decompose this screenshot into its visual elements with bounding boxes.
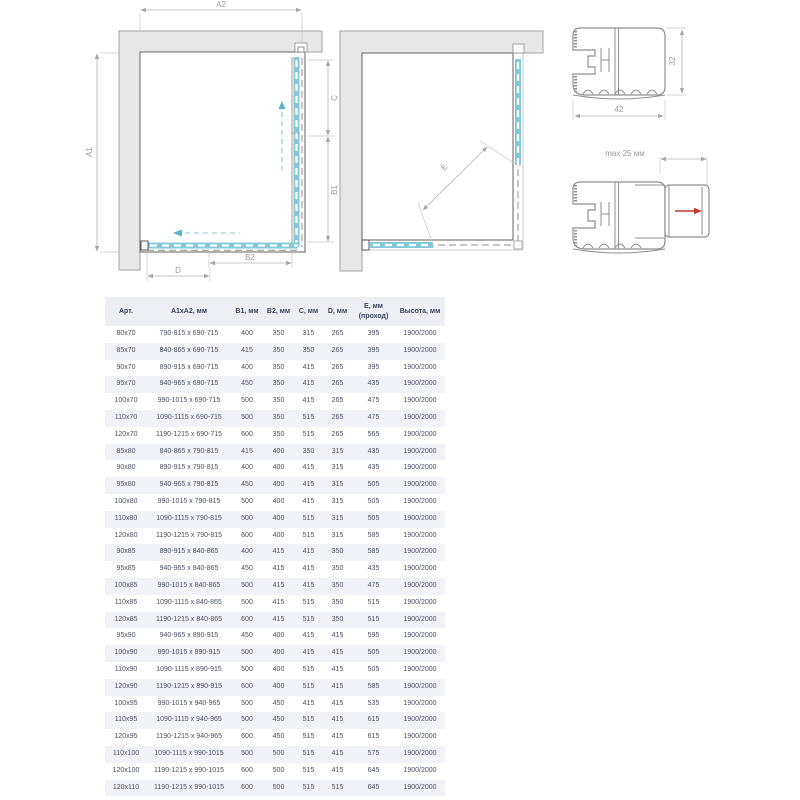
table-cell: 350 <box>323 544 352 561</box>
table-cell: 415 <box>323 628 352 645</box>
table-row: 120x1001190-1215 x 990-10156005005154156… <box>105 763 445 780</box>
table-cell: 1190-1215 x 690-715 <box>147 427 231 444</box>
table-cell: 100x80 <box>105 494 147 511</box>
table-cell: 400 <box>263 511 294 528</box>
table-cell: 100x70 <box>105 393 147 410</box>
table-cell: 315 <box>294 326 323 343</box>
table-row: 100x85990-1015 x 840-8655004154153504751… <box>105 578 445 595</box>
table-cell: 1090-1115 x 840-865 <box>147 595 231 612</box>
table-cell: 265 <box>323 360 352 377</box>
table-cell: 645 <box>352 763 395 780</box>
table-cell: 415 <box>263 578 294 595</box>
table-cell: 1900/2000 <box>395 528 445 545</box>
table-cell: 95x70 <box>105 376 147 393</box>
table-cell: 350 <box>323 595 352 612</box>
table-cell: 515 <box>294 746 323 763</box>
table-cell: 1900/2000 <box>395 393 445 410</box>
table-cell: 400 <box>231 360 263 377</box>
dim-label-max25: max 25 мм <box>605 149 644 158</box>
table-row: 120x1101190-1215 x 990-10156005005155156… <box>105 780 445 797</box>
dim-label-42: 42 <box>615 105 624 114</box>
table-cell: 500 <box>231 746 263 763</box>
table-cell: 1900/2000 <box>395 662 445 679</box>
table-cell: 600 <box>231 679 263 696</box>
table-cell: 505 <box>352 645 395 662</box>
table-cell: 450 <box>231 561 263 578</box>
column-header: A1xA2, мм <box>147 297 231 326</box>
table-cell: 350 <box>263 343 294 360</box>
table-cell: 1900/2000 <box>395 477 445 494</box>
table-cell: 95x85 <box>105 561 147 578</box>
table-cell: 110x85 <box>105 595 147 612</box>
table-row: 100x70990-1015 x 690-7155003504152654751… <box>105 393 445 410</box>
table-cell: 265 <box>323 393 352 410</box>
table-cell: 400 <box>231 326 263 343</box>
table-cell: 515 <box>294 763 323 780</box>
table-cell: 1900/2000 <box>395 729 445 746</box>
table-cell: 400 <box>231 544 263 561</box>
column-header: B2, мм <box>263 297 294 326</box>
table-cell: 450 <box>263 696 294 713</box>
table-cell: 120x100 <box>105 763 147 780</box>
column-header: Высота, мм <box>395 297 445 326</box>
table-cell: 110x80 <box>105 511 147 528</box>
dim-label-b2: B2 <box>245 253 255 262</box>
table-cell: 515 <box>294 679 323 696</box>
table-cell: 120x110 <box>105 780 147 797</box>
dim-label-a1: A1 <box>85 147 94 157</box>
table-cell: 585 <box>352 544 395 561</box>
enclosure-outline <box>140 52 305 252</box>
table-cell: 515 <box>294 612 323 629</box>
table-cell: 415 <box>263 561 294 578</box>
table-cell: 395 <box>352 326 395 343</box>
table-cell: 450 <box>231 628 263 645</box>
table-cell: 500 <box>231 410 263 427</box>
table-cell: 265 <box>323 326 352 343</box>
table-cell: 315 <box>323 477 352 494</box>
table-cell: 600 <box>231 780 263 797</box>
table-cell: 505 <box>352 477 395 494</box>
table-row: 85x70840-865 x 690-715415350350265395190… <box>105 343 445 360</box>
table-cell: 515 <box>294 712 323 729</box>
table-cell: 395 <box>352 360 395 377</box>
table-cell: 415 <box>294 460 323 477</box>
table-cell: 990-1015 x 940-965 <box>147 696 231 713</box>
table-cell: 515 <box>294 511 323 528</box>
table-cell: 890-915 x 690-715 <box>147 360 231 377</box>
table-cell: 1900/2000 <box>395 561 445 578</box>
table-cell: 1900/2000 <box>395 544 445 561</box>
table-cell: 1900/2000 <box>395 494 445 511</box>
table-cell: 415 <box>323 645 352 662</box>
table-cell: 400 <box>263 477 294 494</box>
table-cell: 415 <box>294 376 323 393</box>
table-row: 120x801190-1215 x 790-815600400515315585… <box>105 528 445 545</box>
table-cell: 500 <box>231 494 263 511</box>
table-cell: 435 <box>352 561 395 578</box>
table-cell: 1900/2000 <box>395 780 445 797</box>
table-cell: 415 <box>323 712 352 729</box>
table-cell: 890-915 x 790-815 <box>147 460 231 477</box>
table-cell: 415 <box>294 628 323 645</box>
dimension-a1: A1 <box>85 53 118 252</box>
table-cell: 350 <box>294 343 323 360</box>
table-cell: 535 <box>352 696 395 713</box>
table-cell: 990-1015 x 690-715 <box>147 393 231 410</box>
dimension-height-32: 32 <box>667 28 686 95</box>
table-cell: 1900/2000 <box>395 444 445 461</box>
table-cell: 1900/2000 <box>395 696 445 713</box>
door-handle <box>141 241 148 250</box>
table-cell: 110x100 <box>105 746 147 763</box>
table-cell: 1900/2000 <box>395 360 445 377</box>
table-cell: 80x70 <box>105 326 147 343</box>
table-cell: 515 <box>352 595 395 612</box>
table-cell: 350 <box>263 393 294 410</box>
table-cell: 500 <box>231 595 263 612</box>
table-cell: 90x80 <box>105 460 147 477</box>
table-cell: 415 <box>294 561 323 578</box>
table-row: 100x95990-1015 x 940-9655004504154155351… <box>105 696 445 713</box>
table-cell: 400 <box>263 662 294 679</box>
column-header: C, мм <box>294 297 323 326</box>
table-cell: 515 <box>294 729 323 746</box>
table-cell: 110x90 <box>105 662 147 679</box>
table-cell: 1900/2000 <box>395 645 445 662</box>
table-row: 90x85890-915 x 840-865400415415350585190… <box>105 544 445 561</box>
dimension-d: D <box>147 253 210 281</box>
table-cell: 600 <box>231 528 263 545</box>
table-cell: 415 <box>294 360 323 377</box>
table-cell: 435 <box>352 376 395 393</box>
table-cell: 515 <box>352 612 395 629</box>
table-cell: 990-1015 x 840-865 <box>147 578 231 595</box>
table-cell: 1090-1115 x 940-965 <box>147 712 231 729</box>
dim-label-a2: A2 <box>216 0 226 9</box>
table-cell: 565 <box>352 427 395 444</box>
dimension-max-25: max 25 мм <box>605 149 707 185</box>
column-header: E, мм(проход) <box>352 297 395 326</box>
table-cell: 840-865 x 790-815 <box>147 444 231 461</box>
table-cell: 350 <box>263 376 294 393</box>
table-cell: 500 <box>231 645 263 662</box>
table-cell: 500 <box>231 712 263 729</box>
table-cell: 1900/2000 <box>395 763 445 780</box>
table-cell: 350 <box>263 360 294 377</box>
wall-profile-bracket <box>295 43 307 52</box>
plan-view-open-diagram: E <box>330 0 560 295</box>
table-cell: 990-1015 x 890-915 <box>147 645 231 662</box>
bottom-door-open <box>362 240 519 250</box>
table-header-row: Арт.A1xA2, ммB1, ммB2, ммC, ммD, ммE, мм… <box>105 297 445 326</box>
table-row: 95x80940-965 x 790-815450400415315505190… <box>105 477 445 494</box>
table-row: 80x70790-815 x 690-715400350315265395190… <box>105 326 445 343</box>
table-cell: 515 <box>323 780 352 797</box>
table-cell: 1190-1215 x 890-915 <box>147 679 231 696</box>
table-row: 100x90990-1015 x 890-9155004004154155051… <box>105 645 445 662</box>
table-cell: 400 <box>263 628 294 645</box>
table-cell: 1900/2000 <box>395 511 445 528</box>
table-row: 120x951190-1215 x 940-965600450515415615… <box>105 729 445 746</box>
table-cell: 415 <box>323 662 352 679</box>
table-cell: 940-965 x 790-815 <box>147 477 231 494</box>
table-cell: 1190-1215 x 990-1015 <box>147 763 231 780</box>
column-header: B1, мм <box>231 297 263 326</box>
table-row: 95x85940-965 x 840-865450415415350435190… <box>105 561 445 578</box>
table-cell: 500 <box>263 780 294 797</box>
table-row: 110x851090-1115 x 840-865500415515350515… <box>105 595 445 612</box>
corner-connector <box>514 241 522 249</box>
table-row: 120x901190-1215 x 890-915600400515415585… <box>105 679 445 696</box>
table-cell: 315 <box>323 528 352 545</box>
spec-table-body: 80x70790-815 x 690-715400350315265395190… <box>105 326 445 796</box>
table-cell: 90x70 <box>105 360 147 377</box>
column-header: Арт. <box>105 297 147 326</box>
table-cell: 475 <box>352 410 395 427</box>
table-cell: 435 <box>352 460 395 477</box>
table-cell: 415 <box>263 612 294 629</box>
table-cell: 450 <box>231 477 263 494</box>
table-cell: 515 <box>294 410 323 427</box>
table-cell: 415 <box>323 746 352 763</box>
table-cell: 415 <box>263 595 294 612</box>
table-cell: 265 <box>323 427 352 444</box>
table-cell: 400 <box>263 645 294 662</box>
table-cell: 515 <box>294 595 323 612</box>
table-row: 90x70890-915 x 690-715400350415265395190… <box>105 360 445 377</box>
table-cell: 400 <box>231 460 263 477</box>
table-cell: 415 <box>231 343 263 360</box>
table-cell: 515 <box>294 427 323 444</box>
column-header: D, мм <box>323 297 352 326</box>
table-cell: 840-865 x 690-715 <box>147 343 231 360</box>
table-cell: 400 <box>263 494 294 511</box>
table-cell: 615 <box>352 712 395 729</box>
table-cell: 500 <box>263 746 294 763</box>
table-cell: 415 <box>294 393 323 410</box>
table-cell: 395 <box>352 343 395 360</box>
table-cell: 1900/2000 <box>395 612 445 629</box>
table-cell: 265 <box>323 376 352 393</box>
table-cell: 1900/2000 <box>395 578 445 595</box>
dim-label-d: D <box>175 266 181 275</box>
table-cell: 315 <box>323 511 352 528</box>
table-cell: 1900/2000 <box>395 712 445 729</box>
table-cell: 415 <box>294 645 323 662</box>
table-cell: 595 <box>352 628 395 645</box>
table-row: 85x80840-865 x 790-815415400350315435190… <box>105 444 445 461</box>
table-cell: 1900/2000 <box>395 628 445 645</box>
table-cell: 500 <box>263 763 294 780</box>
table-cell: 475 <box>352 578 395 595</box>
plan-view-closed-diagram: A2 A1 C B1 B2 <box>60 0 350 295</box>
table-cell: 350 <box>263 326 294 343</box>
table-cell: 500 <box>231 662 263 679</box>
table-cell: 315 <box>323 460 352 477</box>
table-cell: 95x80 <box>105 477 147 494</box>
table-row: 120x851190-1215 x 840-865600415515350515… <box>105 612 445 629</box>
table-cell: 85x70 <box>105 343 147 360</box>
table-cell: 400 <box>263 444 294 461</box>
table-cell: 315 <box>323 444 352 461</box>
table-cell: 350 <box>323 612 352 629</box>
table-cell: 940-965 x 890-915 <box>147 628 231 645</box>
table-cell: 100x95 <box>105 696 147 713</box>
table-cell: 990-1015 x 790-815 <box>147 494 231 511</box>
table-cell: 505 <box>352 494 395 511</box>
table-row: 100x80990-1015 x 790-8155004004153155051… <box>105 494 445 511</box>
table-row: 95x90940-965 x 890-915450400415415595190… <box>105 628 445 645</box>
table-cell: 1090-1115 x 990-1015 <box>147 746 231 763</box>
table-cell: 120x70 <box>105 427 147 444</box>
table-cell: 350 <box>263 410 294 427</box>
aluminum-profile <box>573 28 665 99</box>
enclosure-outline <box>362 53 513 240</box>
table-cell: 940-965 x 690-715 <box>147 376 231 393</box>
table-row: 110x951090-1115 x 940-965500450515415615… <box>105 712 445 729</box>
aluminum-profile <box>573 182 665 253</box>
table-cell: 1090-1115 x 690-715 <box>147 410 231 427</box>
table-cell: 500 <box>231 511 263 528</box>
table-cell: 515 <box>294 528 323 545</box>
table-cell: 645 <box>352 780 395 797</box>
table-cell: 265 <box>323 410 352 427</box>
table-cell: 500 <box>231 393 263 410</box>
table-cell: 415 <box>294 494 323 511</box>
table-cell: 585 <box>352 679 395 696</box>
table-cell: 315 <box>323 494 352 511</box>
table-row: 110x1001090-1115 x 990-10155005005154155… <box>105 746 445 763</box>
dimension-width-42: 42 <box>573 100 665 120</box>
table-cell: 400 <box>263 679 294 696</box>
table-cell: 110x70 <box>105 410 147 427</box>
table-cell: 600 <box>231 763 263 780</box>
table-row: 110x701090-1115 x 690-715500350515265475… <box>105 410 445 427</box>
table-cell: 120x85 <box>105 612 147 629</box>
table-cell: 415 <box>231 444 263 461</box>
table-cell: 450 <box>263 712 294 729</box>
table-cell: 585 <box>352 528 395 545</box>
table-cell: 515 <box>294 662 323 679</box>
table-cell: 415 <box>323 696 352 713</box>
table-cell: 1190-1215 x 790-815 <box>147 528 231 545</box>
table-cell: 500 <box>231 696 263 713</box>
table-cell: 400 <box>263 460 294 477</box>
wall-profile-bracket <box>513 44 524 53</box>
dimension-b2: B2 <box>209 253 292 268</box>
table-cell: 400 <box>263 528 294 545</box>
table-cell: 350 <box>294 444 323 461</box>
table-cell: 415 <box>263 544 294 561</box>
table-cell: 1900/2000 <box>395 343 445 360</box>
table-cell: 940-965 x 840-865 <box>147 561 231 578</box>
table-cell: 450 <box>231 376 263 393</box>
table-cell: 265 <box>323 343 352 360</box>
table-cell: 1090-1115 x 790-815 <box>147 511 231 528</box>
table-cell: 1090-1115 x 890-915 <box>147 662 231 679</box>
table-cell: 1900/2000 <box>395 746 445 763</box>
table-cell: 600 <box>231 729 263 746</box>
table-cell: 415 <box>294 544 323 561</box>
table-cell: 415 <box>323 729 352 746</box>
table-cell: 90x85 <box>105 544 147 561</box>
table-cell: 515 <box>294 780 323 797</box>
table-cell: 500 <box>231 578 263 595</box>
table-cell: 790-815 x 690-715 <box>147 326 231 343</box>
datasheet-page: A2 A1 C B1 B2 <box>0 0 800 800</box>
table-cell: 600 <box>231 612 263 629</box>
table-cell: 350 <box>323 578 352 595</box>
table-cell: 100x90 <box>105 645 147 662</box>
table-cell: 505 <box>352 662 395 679</box>
table-cell: 110x95 <box>105 712 147 729</box>
table-cell: 95x90 <box>105 628 147 645</box>
table-row: 110x801090-1115 x 790-815500400515315505… <box>105 511 445 528</box>
table-cell: 615 <box>352 729 395 746</box>
table-cell: 890-915 x 840-865 <box>147 544 231 561</box>
table-cell: 415 <box>294 578 323 595</box>
table-cell: 1190-1215 x 840-865 <box>147 612 231 629</box>
table-cell: 1900/2000 <box>395 595 445 612</box>
door-handle <box>362 240 369 250</box>
table-row: 120x701190-1215 x 690-715600350515265565… <box>105 427 445 444</box>
table-cell: 600 <box>231 427 263 444</box>
table-cell: 415 <box>294 696 323 713</box>
table-cell: 1900/2000 <box>395 410 445 427</box>
table-cell: 475 <box>352 393 395 410</box>
table-row: 95x70940-965 x 690-715450350415265435190… <box>105 376 445 393</box>
table-cell: 415 <box>294 477 323 494</box>
table-cell: 120x90 <box>105 679 147 696</box>
table-cell: 1900/2000 <box>395 326 445 343</box>
table-cell: 415 <box>323 679 352 696</box>
table-cell: 350 <box>263 427 294 444</box>
table-cell: 100x85 <box>105 578 147 595</box>
table-cell: 1190-1215 x 940-965 <box>147 729 231 746</box>
table-row: 110x901090-1115 x 890-915500400515415505… <box>105 662 445 679</box>
table-cell: 1190-1215 x 990-1015 <box>147 780 231 797</box>
table-cell: 120x80 <box>105 528 147 545</box>
table-cell: 435 <box>352 444 395 461</box>
profile-section-diagram: 32 42 <box>555 10 795 130</box>
table-cell: 1900/2000 <box>395 427 445 444</box>
table-cell: 120x95 <box>105 729 147 746</box>
profile-adjustment-diagram: max 25 мм <box>555 130 795 265</box>
spec-table: Арт.A1xA2, ммB1, ммB2, ммC, ммD, ммE, мм… <box>105 297 445 796</box>
table-cell: 350 <box>323 561 352 578</box>
dim-label-32: 32 <box>668 56 677 65</box>
table-cell: 85x80 <box>105 444 147 461</box>
table-cell: 1900/2000 <box>395 460 445 477</box>
table-cell: 1900/2000 <box>395 679 445 696</box>
table-row: 90x80890-915 x 790-815400400415315435190… <box>105 460 445 477</box>
table-cell: 450 <box>263 729 294 746</box>
table-cell: 415 <box>323 763 352 780</box>
table-cell: 1900/2000 <box>395 376 445 393</box>
table-cell: 575 <box>352 746 395 763</box>
table-cell: 505 <box>352 511 395 528</box>
